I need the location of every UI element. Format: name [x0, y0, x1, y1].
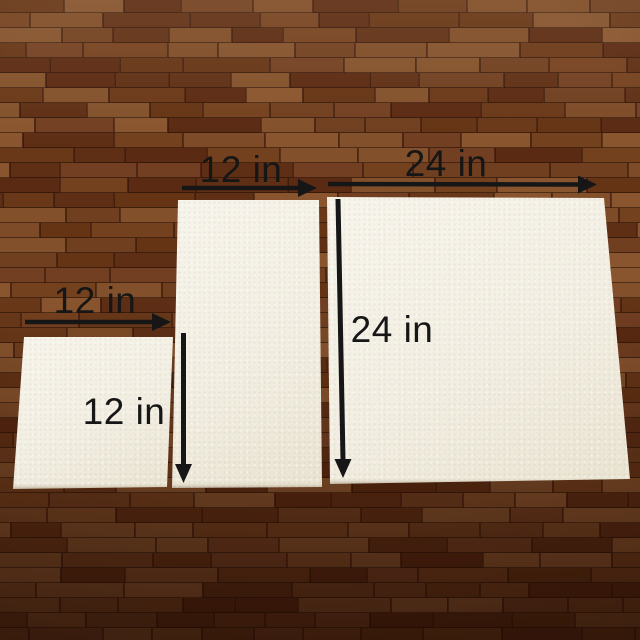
floor-plank — [287, 553, 350, 568]
floor-plank — [246, 88, 302, 103]
floor-plank — [0, 568, 60, 583]
floor-plank — [0, 58, 49, 73]
floor-plank — [582, 148, 640, 163]
floor-plank — [510, 508, 562, 523]
floor-plank — [60, 178, 127, 193]
floor-plank — [292, 583, 373, 598]
floor-plank — [543, 523, 599, 538]
floor-plank — [152, 628, 201, 640]
floor-plank — [283, 28, 355, 43]
floor-plank — [313, 0, 397, 13]
floor-plank — [64, 0, 123, 13]
floor-plank — [497, 178, 586, 193]
floor-plank — [231, 73, 289, 88]
floor-plank — [623, 598, 640, 613]
floor-plank — [365, 118, 420, 133]
dimension-label-medium-width: 12 in — [200, 151, 283, 190]
floor-plank — [612, 73, 640, 88]
floor-plank — [433, 613, 511, 628]
floor-plank — [66, 208, 119, 223]
floor-plank — [627, 58, 640, 73]
floor-plank — [211, 553, 286, 568]
floor-plank — [602, 28, 640, 43]
floor-plank — [47, 508, 115, 523]
floor-plank — [488, 88, 543, 103]
floor-plank — [591, 568, 640, 583]
floor-plank — [409, 523, 479, 538]
floor-plank — [293, 163, 362, 178]
floor-plank — [480, 58, 548, 73]
floor-plank — [401, 553, 482, 568]
floor-plank — [612, 583, 640, 598]
floor-plank — [193, 523, 266, 538]
floor-plank — [0, 343, 13, 358]
floor-plank — [401, 493, 462, 508]
floor-plank — [260, 13, 318, 28]
floor-plank — [602, 133, 640, 148]
floor-plank — [0, 253, 56, 268]
floor-plank — [527, 0, 589, 13]
floor-plank — [66, 238, 135, 253]
floor-plank — [0, 223, 39, 238]
floor-plank — [20, 103, 86, 118]
floor-plank — [553, 478, 601, 493]
floor-plank — [116, 508, 201, 523]
floor-plank — [87, 103, 149, 118]
floor-plank — [533, 13, 609, 28]
floor-plank — [356, 28, 448, 43]
floor-plank — [62, 28, 112, 43]
floor-plank — [483, 553, 539, 568]
floor-plank — [635, 628, 640, 640]
floor-plank — [563, 508, 640, 523]
floor-plank — [10, 163, 59, 178]
floor-plank — [0, 298, 40, 313]
floor-plank — [86, 613, 156, 628]
floor-plank — [298, 598, 390, 613]
floor-plank — [0, 508, 46, 523]
floor-plank — [370, 73, 418, 88]
floor-plank — [214, 613, 264, 628]
floor-plank — [636, 103, 640, 118]
floor-plank — [418, 568, 507, 583]
floor-plank — [130, 493, 193, 508]
floor-plank — [0, 0, 63, 13]
floor-plank — [125, 568, 217, 583]
floor-plank — [0, 43, 25, 58]
floor-plank — [43, 88, 108, 103]
floor-plank — [208, 538, 278, 553]
floor-plank — [62, 553, 152, 568]
floor-plank — [265, 613, 314, 628]
floor-plank — [0, 613, 26, 628]
floor-plank — [125, 148, 206, 163]
floor-plank — [169, 28, 231, 43]
floor-plank — [370, 613, 432, 628]
floor-plank — [480, 523, 542, 538]
floor-plank — [515, 493, 566, 508]
floor-plank — [503, 598, 567, 613]
floor-plank — [118, 598, 182, 613]
floor-plank — [610, 13, 640, 28]
floor-plank — [120, 208, 185, 223]
floor-plank — [540, 553, 611, 568]
floor-plank — [483, 163, 549, 178]
floor-plank — [202, 508, 277, 523]
floor-plank — [0, 493, 48, 508]
floor-plank — [114, 253, 178, 268]
floor-plank — [315, 118, 364, 133]
floor-plank — [334, 103, 390, 118]
floor-plank — [508, 568, 590, 583]
floor-plank — [11, 523, 60, 538]
floor-plank — [275, 493, 330, 508]
dimension-label-small-height: 12 in — [83, 393, 166, 432]
floor-plank — [26, 43, 82, 58]
floor-plank — [0, 178, 59, 193]
floor-plank — [114, 118, 167, 133]
floor-plank — [168, 43, 217, 58]
floor-plank — [157, 613, 213, 628]
floor-plank — [0, 28, 61, 43]
dimension-label-large-height: 24 in — [351, 311, 434, 350]
floor-plank — [529, 583, 611, 598]
floor-plank — [374, 583, 425, 598]
floor-plank — [567, 493, 627, 508]
floor-plank — [477, 118, 536, 133]
floor-plank — [185, 88, 245, 103]
floor-plank — [459, 13, 532, 28]
floor-plank — [135, 523, 192, 538]
floor-plank — [449, 28, 528, 43]
floor-plank — [602, 478, 640, 493]
floor-plank — [303, 88, 374, 103]
floor-plank — [348, 523, 408, 538]
floor-plank — [339, 133, 402, 148]
floor-plank — [115, 73, 168, 88]
floor-plank — [603, 43, 640, 58]
floor-plank — [504, 73, 557, 88]
floor-plank — [310, 568, 366, 583]
floor-plank — [369, 13, 458, 28]
floor-plank — [467, 0, 526, 13]
floor-plank — [91, 223, 173, 238]
floor-plank — [150, 103, 202, 118]
floor-plank — [60, 163, 136, 178]
floor-plank — [61, 523, 134, 538]
floor-plank — [537, 118, 600, 133]
floor-plank — [232, 28, 282, 43]
floor-plank — [265, 133, 338, 148]
floor-plank — [27, 613, 85, 628]
floor-plank — [351, 553, 400, 568]
floor-plank — [0, 103, 19, 118]
floor-plank — [270, 103, 333, 118]
floor-plank — [568, 598, 622, 613]
floor-plank — [606, 253, 640, 268]
floor-plank — [520, 43, 602, 58]
floor-plank — [183, 133, 264, 148]
floor-plank — [544, 88, 624, 103]
floor-plank — [319, 13, 368, 28]
floor-plank — [3, 193, 53, 208]
floor-plank — [0, 193, 2, 208]
floor-plank — [190, 13, 259, 28]
floor-plank — [54, 193, 113, 208]
floor-plank — [480, 583, 528, 598]
floor-plank — [610, 268, 640, 283]
floor-plank — [0, 433, 12, 448]
foam-board-medium-12x24 — [172, 200, 322, 488]
floor-plank — [124, 0, 180, 13]
floor-plank — [315, 613, 369, 628]
floor-plank — [398, 0, 466, 13]
floor-plank — [625, 88, 640, 103]
floor-plank — [448, 598, 502, 613]
floor-plank — [600, 523, 640, 538]
floor-plank — [331, 493, 400, 508]
floor-plank — [267, 523, 347, 538]
floor-plank — [36, 583, 123, 598]
floor-plank — [0, 583, 35, 598]
floor-plank — [74, 148, 124, 163]
floor-plank — [532, 538, 611, 553]
floor-plank — [0, 118, 34, 133]
dimension-label-small-width: 12 in — [54, 282, 137, 321]
floor-plank — [429, 88, 487, 103]
floor-plank — [0, 313, 20, 328]
floor-plank — [463, 493, 514, 508]
floor-plank — [355, 43, 426, 58]
floor-plank — [426, 583, 479, 598]
floor-plank — [375, 88, 428, 103]
floor-plank — [0, 283, 10, 298]
floor-plank — [183, 598, 234, 613]
floor-plank — [0, 88, 42, 103]
floor-plank — [61, 568, 124, 583]
floor-plank — [447, 538, 531, 553]
floor-plank — [0, 628, 28, 640]
floor-plank — [169, 73, 230, 88]
floor-plank — [202, 628, 253, 640]
floor-plank — [0, 268, 44, 283]
floor-plank — [0, 238, 65, 253]
floor-plank — [290, 73, 369, 88]
floor-plank — [361, 508, 421, 523]
floor-plank — [549, 58, 626, 73]
floor-plank — [612, 553, 640, 568]
floor-plank — [558, 73, 611, 88]
floor-plank — [128, 178, 195, 193]
floor-plank — [612, 538, 640, 553]
floor-plank — [30, 13, 102, 28]
floor-plank — [587, 178, 640, 193]
floor-plank — [0, 523, 10, 538]
floor-plank — [391, 103, 480, 118]
floor-plank — [502, 628, 581, 640]
floor-plank — [590, 0, 640, 13]
floor-plank — [40, 223, 90, 238]
dimension-label-large-width: 24 in — [405, 145, 488, 184]
floor-plank — [270, 58, 343, 73]
floor-plank — [113, 28, 168, 43]
floor-plank — [194, 493, 274, 508]
floor-plank — [279, 538, 368, 553]
floor-plank — [565, 103, 635, 118]
floor-plank — [67, 538, 155, 553]
floor-plank — [83, 43, 167, 58]
floor-plank — [103, 13, 189, 28]
floor-plank — [137, 163, 200, 178]
floor-plank — [235, 598, 297, 613]
floor-plank — [254, 628, 302, 640]
floor-plank — [35, 118, 113, 133]
floor-plank — [0, 163, 9, 178]
floor-plank — [0, 208, 65, 223]
floor-plank — [0, 553, 61, 568]
floor-plank — [582, 628, 634, 640]
floor-plank — [218, 43, 294, 58]
photo-scene: 12 in 12 in 12 in 24 in 24 in — [0, 0, 640, 640]
floor-plank — [550, 163, 627, 178]
floor-plank — [628, 163, 640, 178]
floor-plank — [575, 613, 640, 628]
floor-plank — [203, 583, 291, 598]
floor-plank — [168, 118, 260, 133]
floor-plank — [0, 538, 66, 553]
floor-plank — [218, 568, 309, 583]
floor-plank — [601, 118, 640, 133]
floor-plank — [29, 628, 102, 640]
floor-plank — [50, 58, 119, 73]
floor-plank — [427, 43, 519, 58]
floor-plank — [57, 253, 113, 268]
floor-plank — [619, 208, 640, 223]
floor-plank — [109, 88, 184, 103]
floor-plank — [369, 538, 446, 553]
floor-plank — [295, 43, 354, 58]
floor-plank — [628, 493, 640, 508]
floor-plank — [278, 508, 360, 523]
floor-plank — [120, 58, 182, 73]
floor-plank — [626, 373, 640, 388]
floor-plank — [0, 598, 59, 613]
floor-plank — [617, 328, 640, 343]
floor-plank — [512, 613, 574, 628]
floor-plank — [495, 148, 581, 163]
floor-plank — [0, 148, 73, 163]
floor-plank — [0, 13, 29, 28]
floor-plank — [253, 0, 312, 13]
floor-plank — [344, 58, 415, 73]
floor-plank — [621, 298, 640, 313]
floor-plank — [361, 628, 422, 640]
floor-plank — [183, 58, 269, 73]
floor-plank — [280, 148, 357, 163]
floor-plank — [481, 103, 564, 118]
floor-plank — [46, 73, 114, 88]
floor-plank — [261, 118, 314, 133]
floor-plank — [422, 508, 509, 523]
floor-plank — [153, 553, 210, 568]
floor-plank — [529, 28, 601, 43]
floor-plank — [367, 568, 417, 583]
floor-plank — [288, 178, 350, 193]
floor-plank — [0, 133, 22, 148]
floor-plank — [60, 598, 117, 613]
floor-plank — [423, 628, 501, 640]
floor-plank — [0, 73, 45, 88]
floor-plank — [156, 538, 207, 553]
floor-plank — [124, 583, 202, 598]
floor-plank — [103, 628, 151, 640]
floor-plank — [181, 0, 252, 13]
floor-plank — [203, 103, 269, 118]
floor-plank — [611, 193, 640, 208]
floor-plank — [49, 493, 129, 508]
floor-plank — [531, 133, 601, 148]
floor-plank — [23, 133, 113, 148]
floor-plank — [303, 628, 360, 640]
floor-plank — [114, 133, 182, 148]
floor-plank — [419, 73, 503, 88]
floor-plank — [416, 58, 479, 73]
floor-plank — [421, 118, 476, 133]
floor-plank — [391, 598, 447, 613]
